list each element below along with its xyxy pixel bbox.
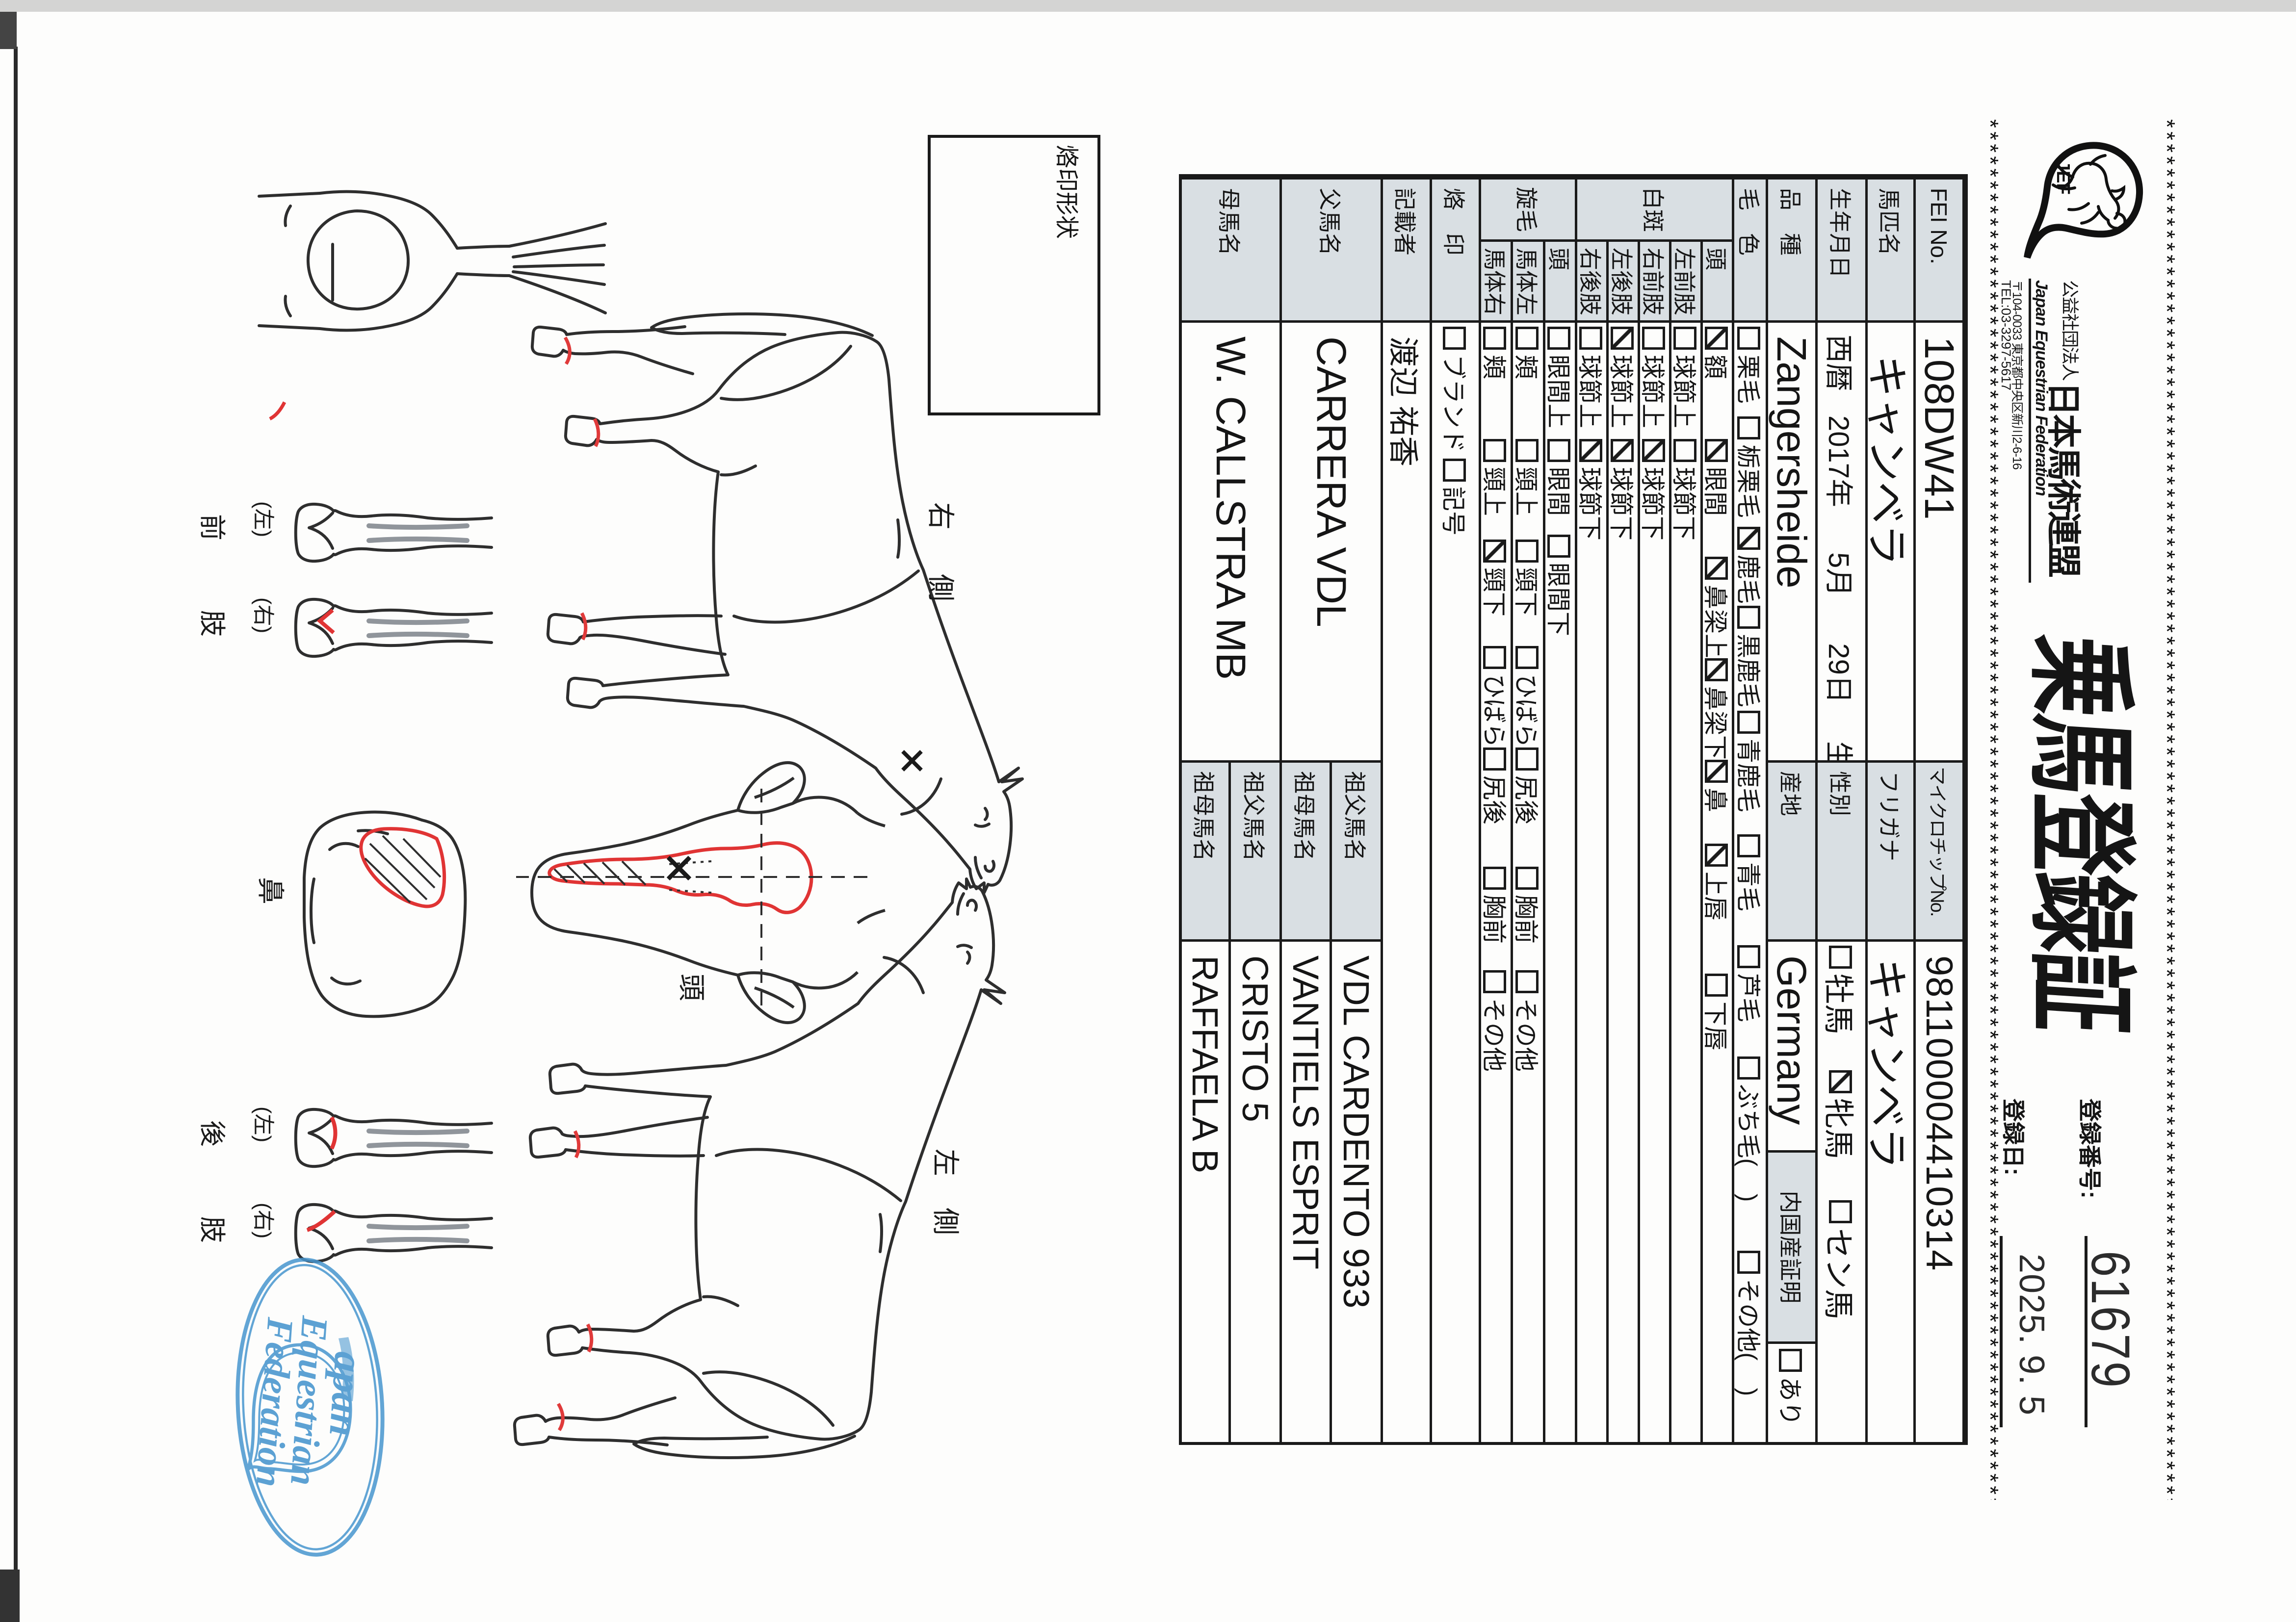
svg-text:鼻: 鼻 [255,877,286,904]
svg-text:前: 前 [197,514,227,541]
svg-text:肢: 肢 [197,610,227,637]
svg-text:側: 側 [930,1208,961,1235]
svg-text:肢: 肢 [197,1216,227,1243]
svg-text:(右): (右) [251,597,275,633]
svg-text:(左): (左) [251,501,275,537]
svg-text:左: 左 [930,1149,961,1176]
svg-text:右: 右 [925,502,956,530]
svg-text:後: 後 [197,1120,227,1147]
svg-text:(左): (左) [251,1107,275,1142]
svg-text:(右): (右) [251,1203,275,1238]
svg-text:側: 側 [925,574,956,601]
svg-text:頭: 頭 [676,974,707,1001]
